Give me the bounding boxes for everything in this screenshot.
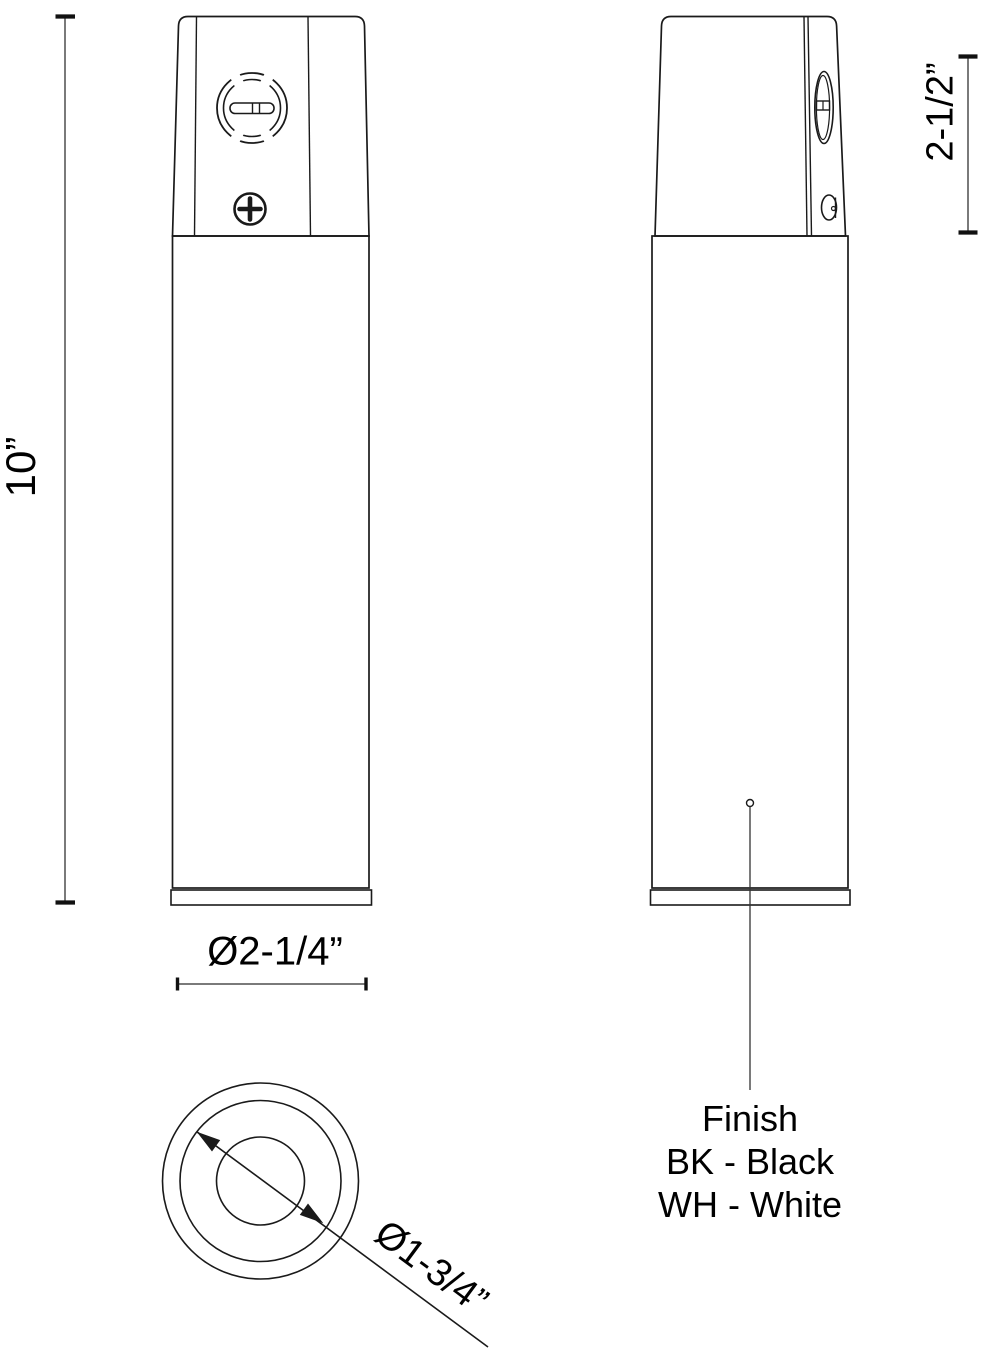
front-cap-left-seam bbox=[195, 17, 197, 236]
side-cap-seam-2 bbox=[808, 17, 812, 236]
side-body-outline bbox=[652, 236, 848, 888]
side-screw-knob bbox=[822, 195, 837, 220]
outer-diameter-dimension-line bbox=[178, 978, 367, 991]
height-dimension-line bbox=[56, 17, 76, 903]
inner-diameter-dimension-line bbox=[197, 1132, 488, 1347]
twist-lock-socket bbox=[217, 70, 287, 147]
leader-dot bbox=[747, 800, 754, 807]
front-cap-outline bbox=[173, 17, 370, 237]
front-view bbox=[171, 17, 372, 906]
finish-option-white: WH - White bbox=[658, 1183, 842, 1226]
finish-option-black: BK - Black bbox=[658, 1140, 842, 1183]
bottom-view bbox=[163, 1083, 359, 1279]
phillips-screw-icon bbox=[235, 194, 266, 225]
bottom-middle-circle bbox=[180, 1101, 341, 1262]
bottom-inner-circle bbox=[217, 1137, 305, 1225]
finish-legend: Finish BK - Black WH - White bbox=[750, 1097, 934, 1226]
finish-leader bbox=[747, 800, 754, 1091]
finish-legend-title: Finish bbox=[658, 1097, 842, 1140]
arrowhead-lower-right bbox=[300, 1204, 324, 1224]
front-cap-right-seam bbox=[308, 17, 311, 236]
arrowhead-upper-left bbox=[197, 1132, 221, 1152]
side-cap-seam-1 bbox=[804, 17, 807, 236]
front-base-ring bbox=[171, 890, 372, 905]
side-view bbox=[651, 17, 851, 906]
front-body-outline bbox=[173, 236, 370, 888]
socket-slot-dividers bbox=[253, 104, 260, 114]
bottom-outer-circle bbox=[163, 1083, 359, 1279]
side-socket-slot bbox=[815, 72, 833, 144]
technical-drawing-page: { "dimensions": { "overall_height": "10”… bbox=[0, 0, 987, 1371]
